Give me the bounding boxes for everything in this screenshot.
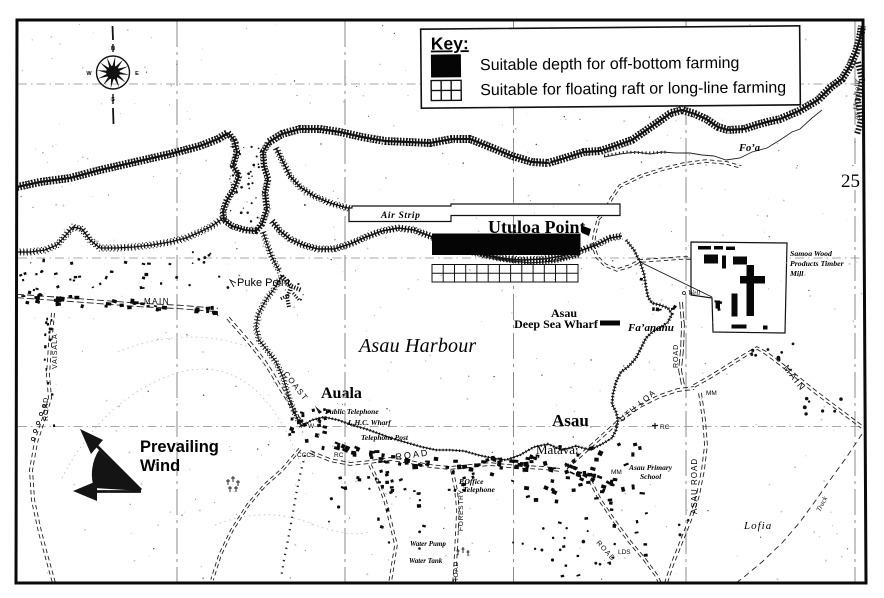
svg-text:Suitable depth for off-bottom: Suitable depth for off-bottom farming: [480, 55, 740, 74]
svg-text:Telephone: Telephone: [463, 485, 495, 494]
svg-text:Public Telephone: Public Telephone: [325, 407, 379, 416]
svg-text:CCCS: CCCS: [297, 452, 316, 459]
svg-text:Key:: Key:: [431, 33, 469, 53]
svg-text:E: E: [135, 71, 139, 77]
svg-text:Products Timber: Products Timber: [790, 259, 845, 268]
svg-text:FORESTRY: FORESTRY: [458, 489, 465, 531]
svg-text:Telephone Post: Telephone Post: [361, 433, 409, 442]
svg-text:RC: RC: [334, 452, 344, 459]
svg-text:Water Pump: Water Pump: [410, 540, 446, 548]
svg-text:Deep Sea Wharf: Deep Sea Wharf: [514, 317, 599, 331]
svg-text:ROAD: ROAD: [673, 344, 680, 368]
svg-text:Fa’ananu: Fa’ananu: [627, 322, 674, 334]
svg-text:Asau Harbour: Asau Harbour: [357, 335, 476, 357]
svg-text:Asau: Asau: [552, 411, 589, 430]
svg-text:Puke Point: Puke Point: [237, 277, 290, 289]
svg-text:VAISALA: VAISALA: [52, 333, 59, 369]
svg-text:ROAD: ROAD: [43, 397, 50, 421]
svg-text:Prevailing: Prevailing: [140, 438, 219, 456]
svg-text:Fo’a: Fo’a: [738, 143, 760, 154]
svg-text:Samoa Wood: Samoa Wood: [790, 249, 832, 258]
svg-text:ASAU ROAD: ASAU ROAD: [690, 458, 699, 514]
svg-text:MAIN: MAIN: [144, 297, 170, 306]
svg-text:Water Tank: Water Tank: [409, 557, 443, 565]
svg-text:MM: MM: [611, 469, 622, 476]
svg-text:RC: RC: [660, 424, 670, 431]
svg-text:L.H.C. Wharf: L.H.C. Wharf: [347, 418, 392, 427]
svg-text:School: School: [640, 472, 662, 481]
svg-text:Matāvai: Matāvai: [536, 442, 579, 457]
svg-text:LDS: LDS: [618, 549, 631, 556]
svg-text:W: W: [86, 71, 92, 77]
svg-text:Lofia: Lofia: [743, 520, 772, 532]
svg-text:N: N: [111, 46, 115, 52]
svg-text:Auala: Auala: [321, 385, 362, 402]
svg-text:Suitable for floating raft or: Suitable for floating raft or long-line …: [480, 79, 786, 99]
svg-text:ROAD: ROAD: [453, 561, 460, 583]
svg-text:Well: Well: [688, 289, 700, 297]
svg-text:Utuloa Point: Utuloa Point: [488, 217, 586, 237]
svg-text:Mill: Mill: [789, 269, 804, 278]
svg-text:MM: MM: [706, 390, 717, 397]
svg-text:Wind: Wind: [140, 457, 180, 475]
svg-text:er Harbour: er Harbour: [852, 78, 862, 120]
svg-text:Air Strip: Air Strip: [380, 211, 420, 221]
svg-text:W: W: [308, 423, 315, 430]
svg-text:25: 25: [841, 171, 860, 192]
svg-text:Asau Primary: Asau Primary: [628, 463, 673, 472]
